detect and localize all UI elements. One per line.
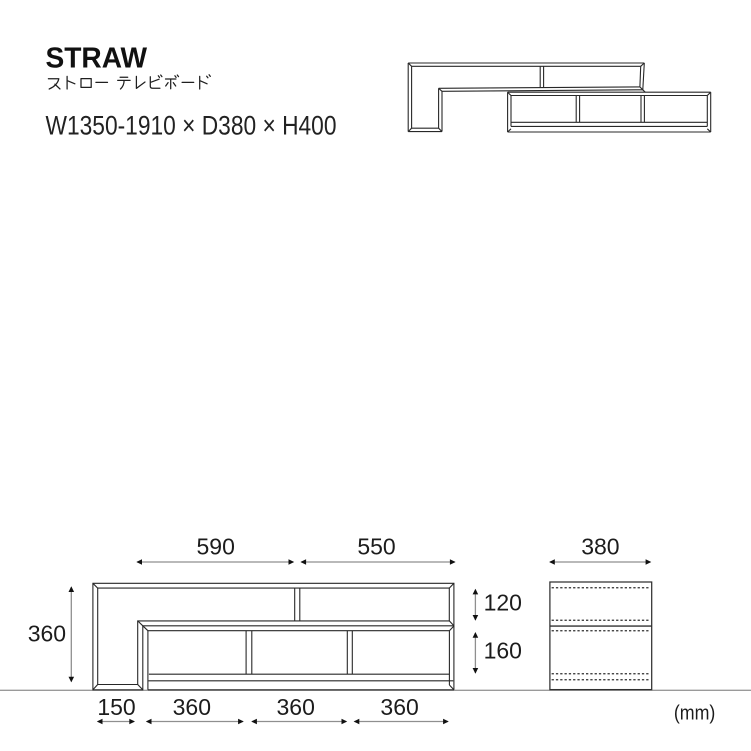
svg-text:360: 360 [380,694,418,720]
svg-text:120: 120 [484,590,522,616]
svg-text:STRAW: STRAW [46,43,148,75]
svg-text:550: 550 [357,533,395,559]
svg-text:360: 360 [173,694,211,720]
svg-text:(mm): (mm) [674,703,716,725]
svg-text:360: 360 [28,621,66,647]
svg-text:590: 590 [197,533,235,559]
svg-text:360: 360 [277,694,315,720]
svg-text:380: 380 [581,533,619,559]
svg-text:150: 150 [97,694,135,720]
svg-text:W1350-1910 × D380 × H400: W1350-1910 × D380 × H400 [46,111,337,141]
svg-text:160: 160 [484,638,522,664]
